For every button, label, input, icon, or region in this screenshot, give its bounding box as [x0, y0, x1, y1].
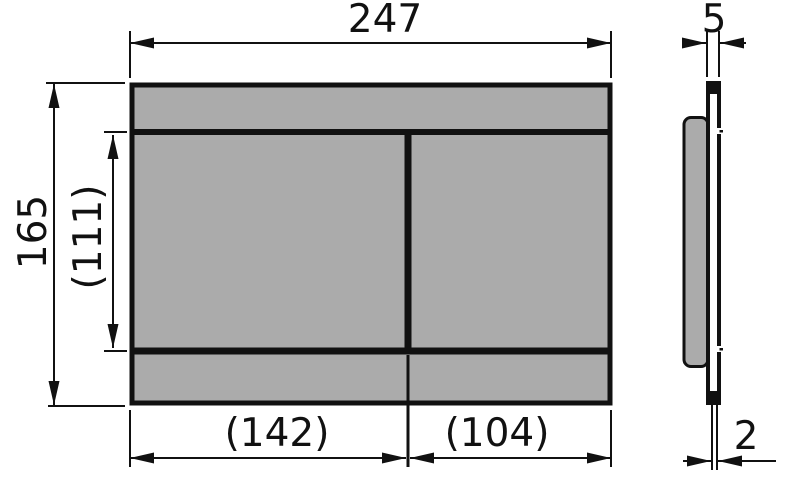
dim-overall-width: 247 — [130, 0, 611, 78]
flush-plate-drawing: 247 165 (111) (142) (104) — [0, 0, 800, 495]
right-button-width-label: (104) — [445, 411, 550, 456]
left-button-width-label: (142) — [225, 411, 330, 456]
notch-tick — [720, 348, 724, 351]
overall-height-label: 165 — [11, 195, 56, 269]
inner-height-label: (111) — [66, 185, 111, 290]
front-view: 247 165 (111) (142) (104) — [11, 0, 611, 467]
side-view: 5 2 — [683, 0, 776, 470]
depth-label: 5 — [702, 0, 727, 42]
groove-notch-bottom — [716, 346, 723, 352]
groove-notch-top — [716, 128, 723, 134]
notch-tick — [720, 130, 724, 133]
overall-width-label: 247 — [348, 0, 422, 42]
panel-thickness-label: 2 — [734, 414, 759, 459]
plate-top-cap — [707, 83, 719, 94]
plate-bottom-cap — [707, 391, 719, 402]
dim-inner-height: (111) — [66, 132, 127, 351]
dim-panel-thickness: 2 — [683, 405, 776, 470]
side-view-body — [684, 118, 708, 367]
dim-depth: 5 — [683, 0, 746, 77]
technical-drawing-canvas: 247 165 (111) (142) (104) — [0, 0, 800, 495]
